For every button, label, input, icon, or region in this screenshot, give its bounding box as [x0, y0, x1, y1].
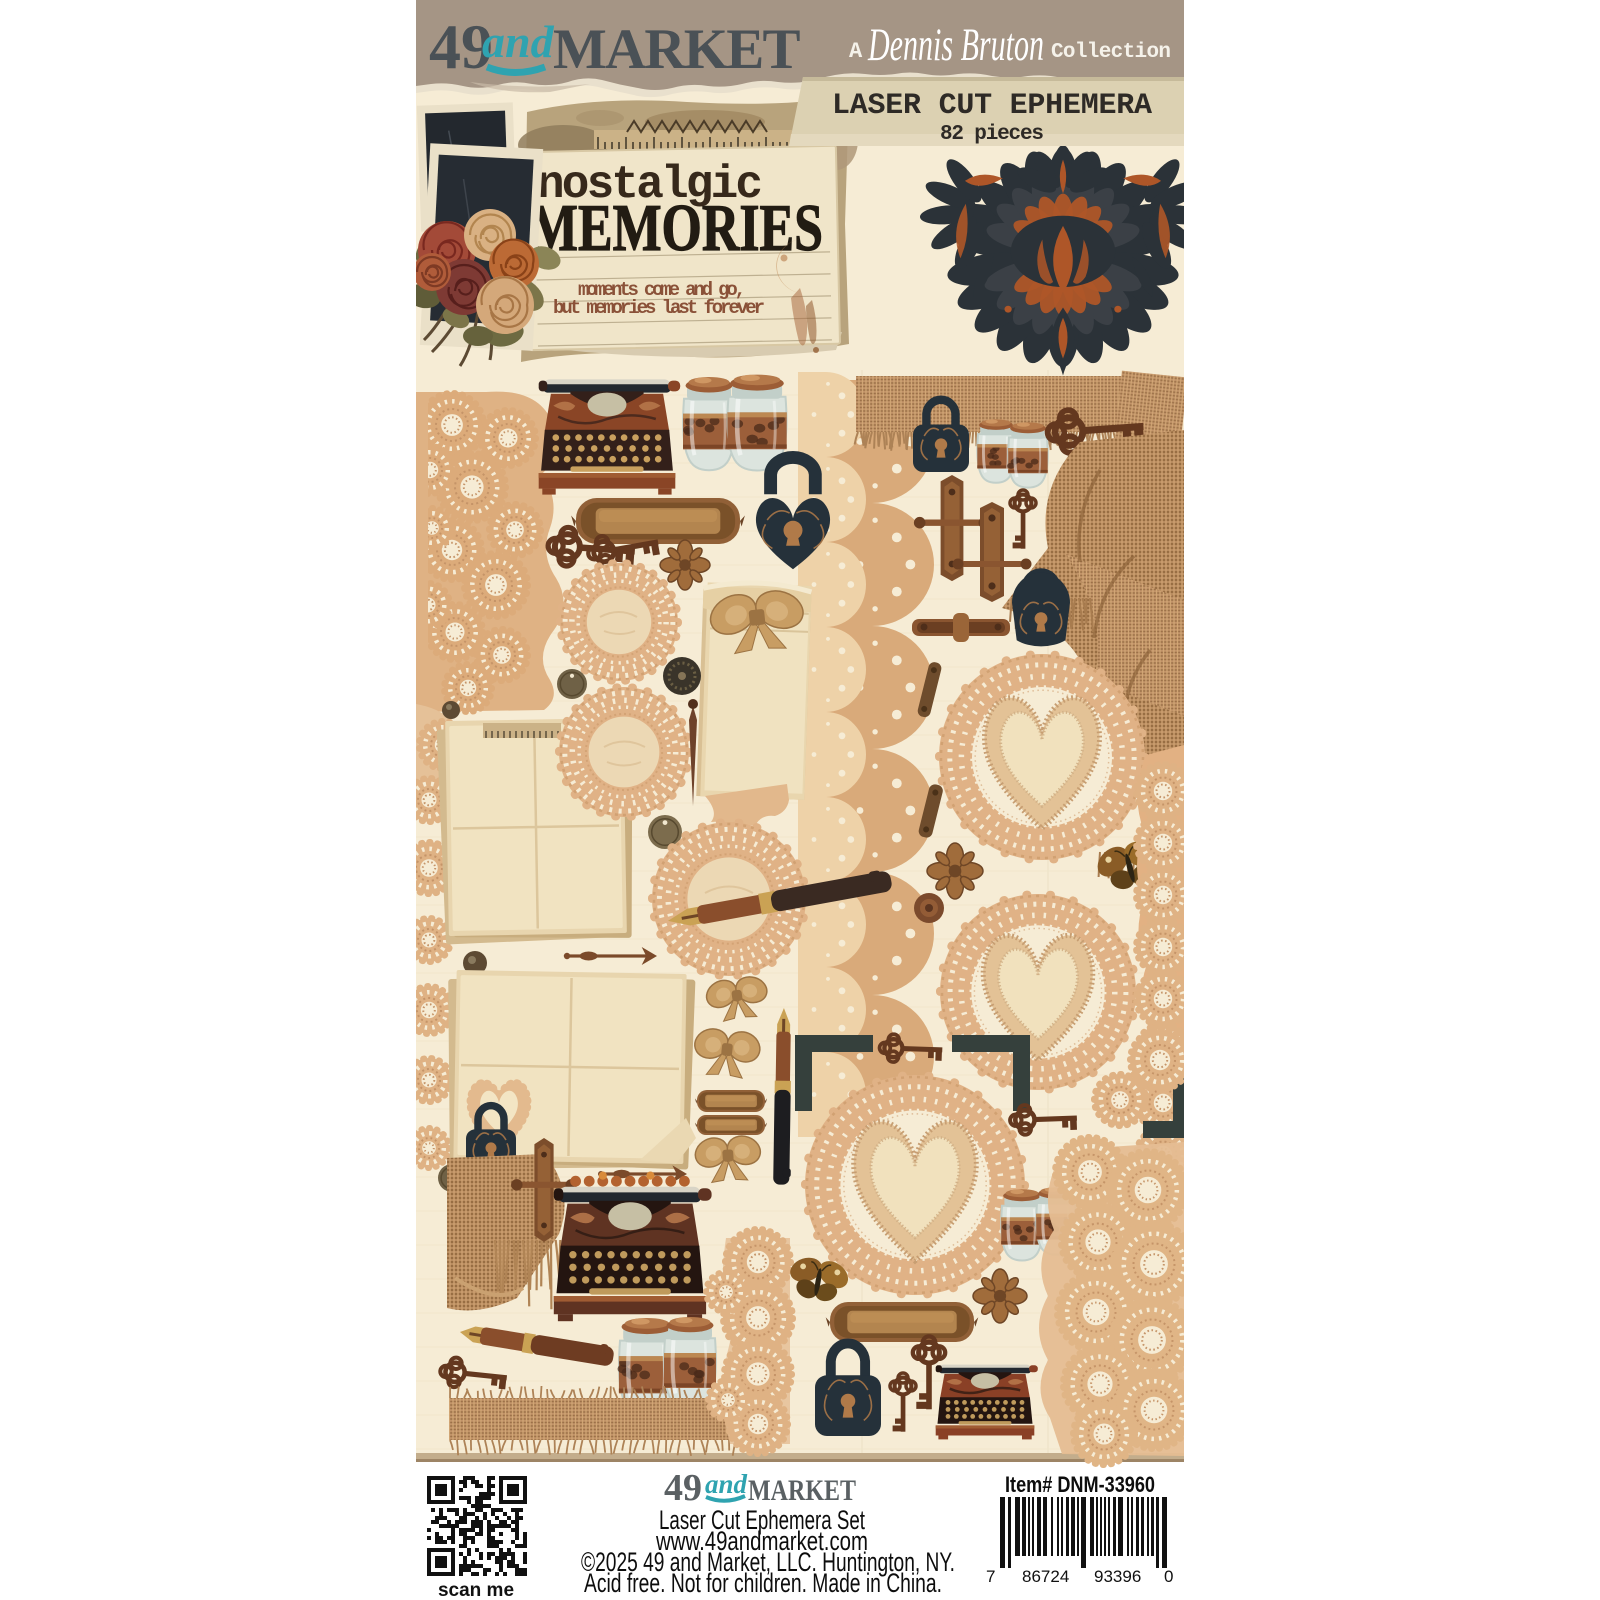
svg-text:93396: 93396	[1094, 1567, 1141, 1586]
svg-text:MARKET: MARKET	[748, 1474, 856, 1507]
svg-text:0: 0	[1164, 1567, 1173, 1586]
svg-text:and: and	[705, 1469, 748, 1499]
svg-text:scan me: scan me	[438, 1580, 514, 1600]
svg-text:49: 49	[664, 1467, 702, 1509]
svg-text:86724: 86724	[1022, 1567, 1069, 1586]
svg-text:7: 7	[986, 1567, 995, 1586]
svg-text:Item# DNM-33960: Item# DNM-33960	[1005, 1472, 1155, 1497]
svg-text:Acid free. Not for children. M: Acid free. Not for children. Made in Chi…	[584, 1568, 942, 1598]
